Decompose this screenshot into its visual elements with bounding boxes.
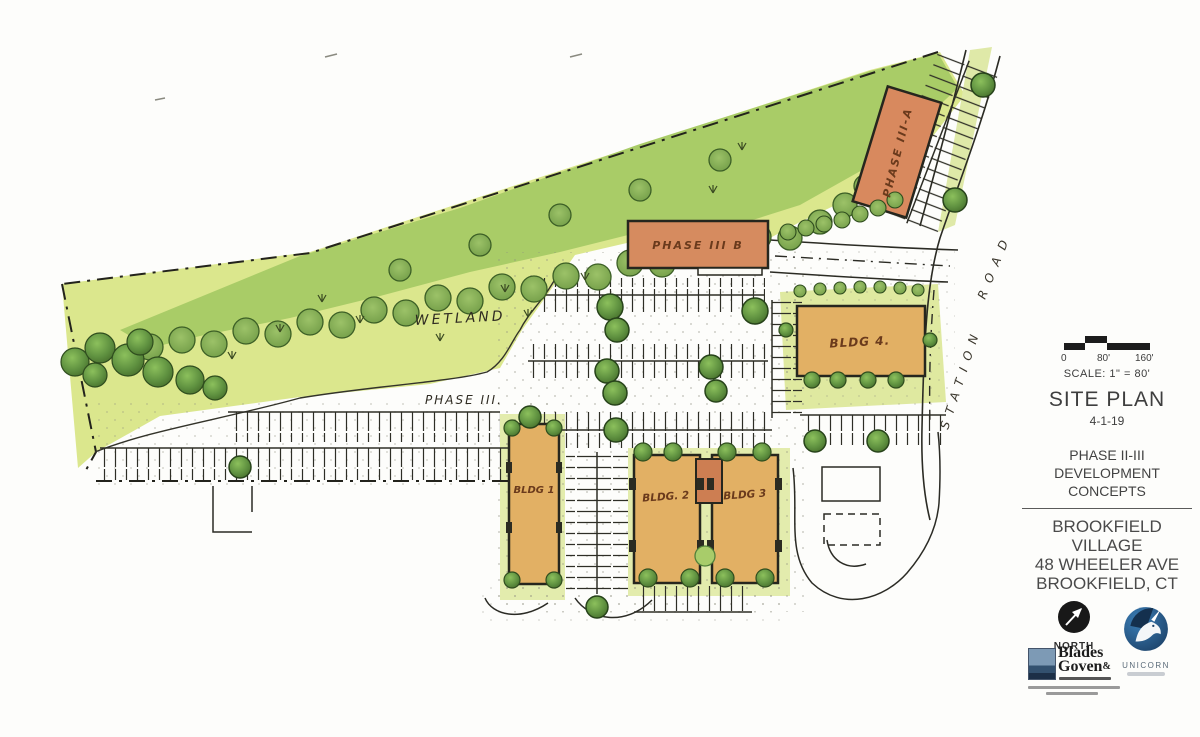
sheet-date: 4-1-19 (1022, 414, 1192, 428)
project-city: BROOKFIELD, CT (1022, 574, 1192, 593)
goven-word: Goven (1058, 658, 1102, 675)
unicorn-logo: UNICORN (1114, 604, 1178, 676)
scale-label: SCALE: 1" = 80' (1022, 368, 1192, 380)
existing-structure-outline (822, 467, 880, 501)
courtyard-tree (695, 546, 715, 566)
unicorn-icon (1122, 604, 1170, 654)
unicorn-label: UNICORN (1114, 661, 1178, 670)
label-phase3b: PHASE III B (652, 239, 744, 252)
north-arrow-icon (1057, 600, 1091, 634)
unicorn-subtext-line (1127, 672, 1165, 676)
project-address: 48 WHEELER AVE (1022, 555, 1192, 574)
blades-address-line (1028, 686, 1120, 689)
project-name: BROOKFIELD VILLAGE 48 WHEELER AVE BROOKF… (1022, 517, 1192, 593)
blades-goven-wordmark: Blades Goven& (1058, 646, 1111, 674)
project-line: BROOKFIELD (1022, 517, 1192, 536)
scale-tick-80: 80' (1097, 353, 1110, 364)
scale-ticks: 0 80' 160' (1057, 353, 1157, 365)
survey-dashes (155, 54, 582, 100)
scale-tick-0: 0 (1061, 353, 1067, 364)
divider-line (1022, 508, 1192, 509)
blades-tagline-line (1059, 677, 1111, 680)
scale-tick-160: 160' (1135, 353, 1154, 364)
label-bldg1: BLDG 1 (514, 485, 555, 496)
phase-heading: PHASE II-III DEVELOPMENT CONCEPTS (1022, 446, 1192, 500)
phase-line: CONCEPTS (1022, 482, 1192, 500)
site-plan-drawing: WETLAND PHASE III. ROAD STATION PHASE II… (0, 0, 1200, 737)
building-bldg1 (509, 424, 559, 584)
site-plan-sheet: WETLAND PHASE III. ROAD STATION PHASE II… (0, 0, 1200, 737)
phase3-area-label: PHASE III. (425, 393, 503, 407)
project-line: VILLAGE (1022, 536, 1192, 555)
future-building-dashed (824, 514, 880, 545)
sheet-title: SITE PLAN (1022, 388, 1192, 412)
scale-bar (1064, 336, 1150, 351)
title-block: 0 80' 160' SCALE: 1" = 80' SITE PLAN 4-1… (1022, 330, 1192, 593)
building-phase3b-step (698, 268, 762, 275)
ampersand: & (1102, 661, 1110, 672)
phase-line: PHASE II-III (1022, 446, 1192, 464)
phase-line: DEVELOPMENT (1022, 464, 1192, 482)
building-bldg2 (634, 455, 700, 583)
blades-goven-photo (1028, 648, 1056, 680)
street-label-road: ROAD (975, 230, 1015, 301)
blades-phone-line (1046, 692, 1098, 695)
